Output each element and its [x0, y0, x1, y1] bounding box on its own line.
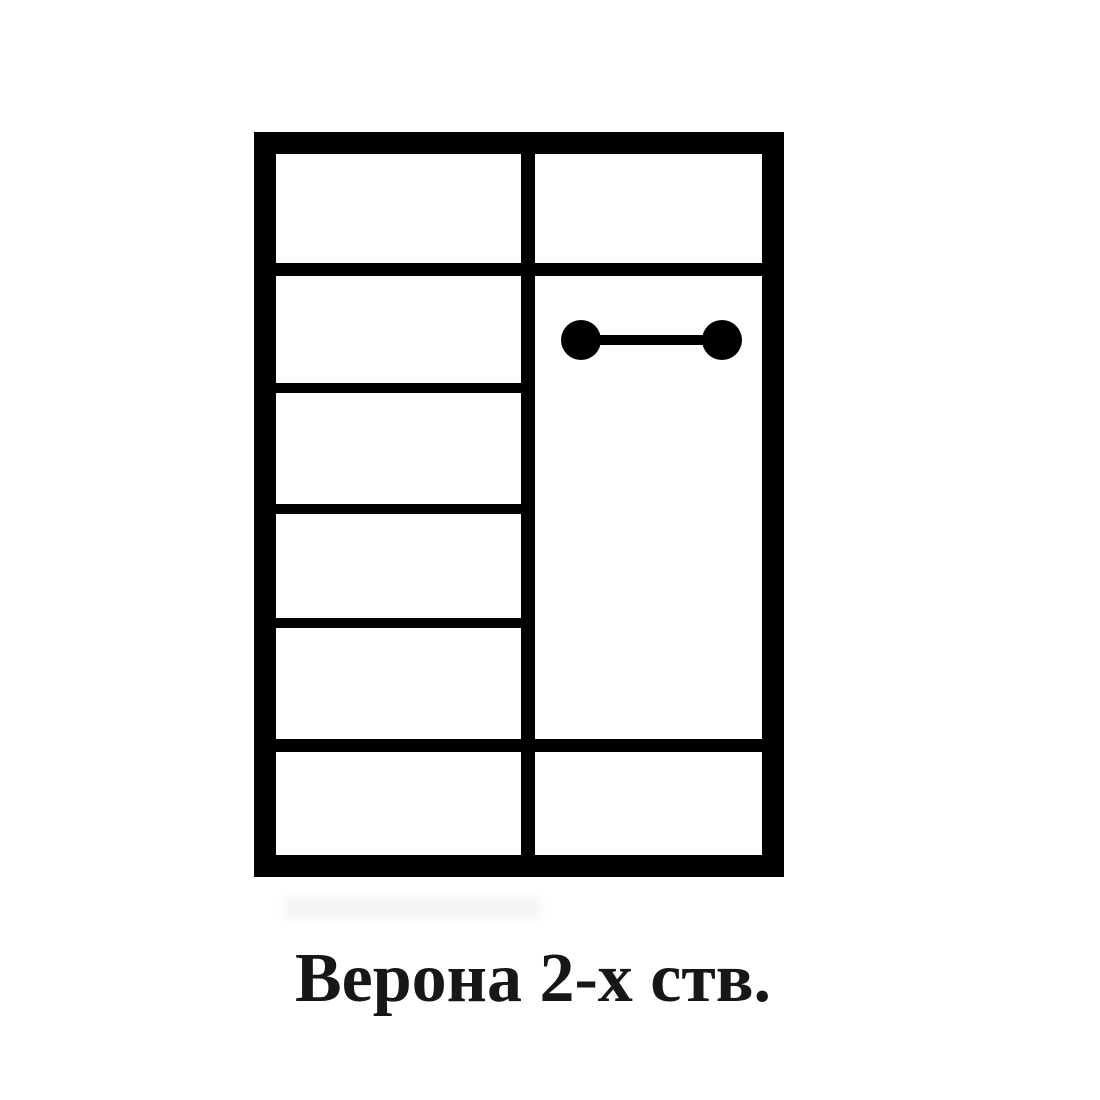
frame-top: [254, 132, 784, 154]
hanger-rod-end-right: [702, 320, 742, 360]
left-section-shelf: [254, 504, 535, 514]
full-width-shelf: [254, 739, 784, 752]
left-section-shelf: [254, 383, 535, 393]
diagram-caption: Верона 2-х ств.: [295, 944, 771, 1014]
left-section-shelf: [254, 618, 535, 628]
wardrobe-diagram: [0, 0, 1100, 1100]
frame-right: [762, 132, 784, 877]
page: Верона 2-х ств.: [0, 0, 1100, 1100]
frame-bottom: [254, 855, 784, 877]
hanger-rod-bar: [581, 335, 722, 345]
hanger-rod-end-left: [561, 320, 601, 360]
full-width-shelf: [254, 263, 784, 276]
watermark-artifact: [285, 896, 540, 920]
